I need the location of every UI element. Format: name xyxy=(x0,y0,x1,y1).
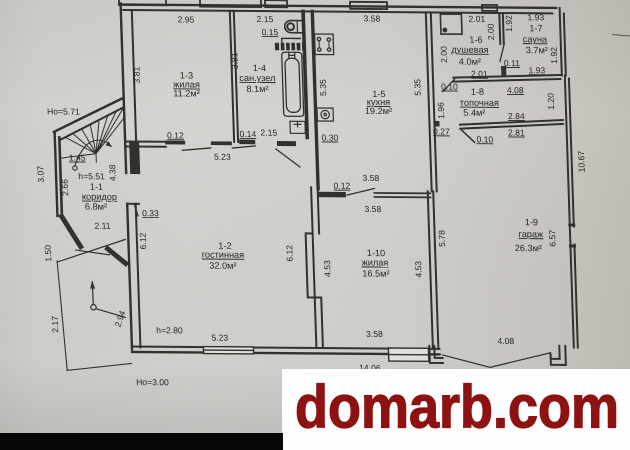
svg-text:1.96: 1.96 xyxy=(436,102,447,119)
svg-text:0.30: 0.30 xyxy=(321,133,338,143)
svg-text:2.01: 2.01 xyxy=(468,14,485,24)
svg-text:0.14: 0.14 xyxy=(239,129,256,139)
svg-text:коридор: коридор xyxy=(82,192,117,202)
svg-text:2.00: 2.00 xyxy=(439,46,450,63)
svg-text:0.33: 0.33 xyxy=(142,208,159,218)
svg-text:h=5.51: h=5.51 xyxy=(78,171,105,181)
svg-text:3.7м²: 3.7м² xyxy=(526,45,548,55)
svg-text:3.07: 3.07 xyxy=(35,166,46,183)
svg-text:4.53: 4.53 xyxy=(322,260,333,277)
svg-text:душевая: душевая xyxy=(451,45,489,55)
svg-text:26.3м²: 26.3м² xyxy=(515,243,543,253)
svg-text:16.5м²: 16.5м² xyxy=(362,269,390,279)
svg-text:5.4м²: 5.4м² xyxy=(463,108,485,118)
svg-text:1-1: 1-1 xyxy=(90,182,104,192)
svg-text:Но=3.00: Но=3.00 xyxy=(136,377,169,387)
svg-text:1-8: 1-8 xyxy=(471,87,485,97)
svg-text:3.81: 3.81 xyxy=(131,66,142,83)
svg-text:1.93: 1.93 xyxy=(527,12,544,22)
svg-text:сауна: сауна xyxy=(522,34,548,44)
svg-text:гараж: гараж xyxy=(518,229,544,239)
svg-text:32.0м²: 32.0м² xyxy=(209,261,237,271)
svg-text:1.50: 1.50 xyxy=(43,245,54,262)
svg-text:11.2м²: 11.2м² xyxy=(173,88,200,98)
svg-text:2.01: 2.01 xyxy=(471,69,488,79)
svg-text:1.93: 1.93 xyxy=(528,65,545,75)
svg-text:0.10: 0.10 xyxy=(441,82,458,92)
svg-text:1-4: 1-4 xyxy=(253,63,267,73)
svg-text:2.66: 2.66 xyxy=(60,179,71,196)
svg-text:1-9: 1-9 xyxy=(525,217,539,227)
svg-text:5.78: 5.78 xyxy=(437,230,448,247)
svg-text:6.57: 6.57 xyxy=(547,230,558,247)
svg-text:3.58: 3.58 xyxy=(366,329,383,339)
svg-text:2.81: 2.81 xyxy=(508,128,525,138)
svg-text:0.10: 0.10 xyxy=(476,134,493,144)
svg-text:1.92: 1.92 xyxy=(549,47,560,64)
svg-text:2.15: 2.15 xyxy=(260,128,277,138)
svg-text:19.2м²: 19.2м² xyxy=(365,106,393,116)
svg-text:4.0м²: 4.0м² xyxy=(459,57,481,67)
svg-text:6.8м²: 6.8м² xyxy=(85,202,107,212)
svg-text:3.58: 3.58 xyxy=(362,173,379,183)
svg-text:4.08: 4.08 xyxy=(507,85,524,95)
svg-text:domarb.com: domarb.com xyxy=(295,374,619,441)
svg-text:2.17: 2.17 xyxy=(50,316,61,333)
svg-text:0.15: 0.15 xyxy=(261,27,278,37)
svg-text:5.35: 5.35 xyxy=(318,79,329,96)
svg-text:5.35: 5.35 xyxy=(412,79,423,96)
svg-text:0.12: 0.12 xyxy=(167,130,184,140)
svg-text:2.11: 2.11 xyxy=(94,221,111,231)
svg-text:1.20: 1.20 xyxy=(546,93,557,110)
svg-text:3.81: 3.81 xyxy=(229,52,240,69)
svg-text:2.95: 2.95 xyxy=(177,14,194,24)
svg-text:2.00: 2.00 xyxy=(486,23,497,40)
svg-text:топочная: топочная xyxy=(460,98,499,108)
svg-text:1-6: 1-6 xyxy=(469,35,483,45)
svg-text:4.53: 4.53 xyxy=(413,261,424,278)
svg-text:3.58: 3.58 xyxy=(363,13,380,23)
svg-text:h=2.80: h=2.80 xyxy=(156,325,183,335)
svg-text:2.15: 2.15 xyxy=(256,14,273,24)
svg-text:6.12: 6.12 xyxy=(138,232,149,249)
svg-text:2.84: 2.84 xyxy=(508,111,525,121)
svg-text:Но=5.71: Но=5.71 xyxy=(47,106,80,116)
svg-text:10.67: 10.67 xyxy=(576,151,587,173)
svg-text:5.23: 5.23 xyxy=(211,333,228,343)
svg-text:1-7: 1-7 xyxy=(529,23,543,33)
svg-text:3.58: 3.58 xyxy=(364,204,381,214)
svg-text:гостинная: гостинная xyxy=(202,250,245,260)
svg-text:4.08: 4.08 xyxy=(497,336,514,346)
svg-text:1.45: 1.45 xyxy=(69,153,86,163)
svg-text:8.1м²: 8.1м² xyxy=(246,84,268,94)
svg-text:0.12: 0.12 xyxy=(333,181,350,191)
svg-text:6.12: 6.12 xyxy=(284,245,295,262)
svg-text:жилая: жилая xyxy=(361,257,388,267)
svg-text:5.23: 5.23 xyxy=(214,152,231,162)
svg-text:0.27: 0.27 xyxy=(433,126,450,136)
svg-text:сан.узел: сан.узел xyxy=(239,73,276,83)
svg-text:0.11: 0.11 xyxy=(504,58,521,68)
svg-text:4.38: 4.38 xyxy=(107,164,118,181)
svg-text:1.92: 1.92 xyxy=(504,15,515,32)
